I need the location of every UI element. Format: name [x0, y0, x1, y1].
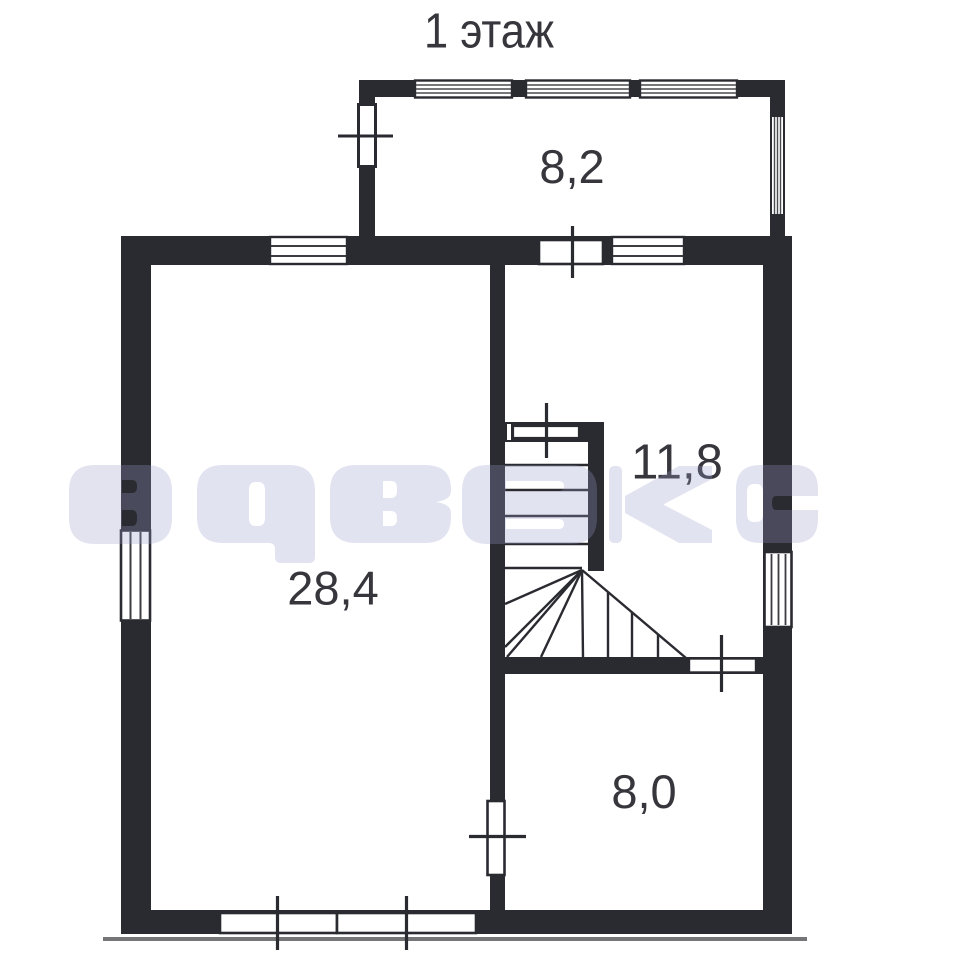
svg-text:8,0: 8,0: [611, 765, 676, 818]
svg-text:28,4: 28,4: [287, 562, 378, 615]
svg-text:8,2: 8,2: [539, 140, 604, 193]
svg-text:1 этаж: 1 этаж: [424, 3, 554, 58]
